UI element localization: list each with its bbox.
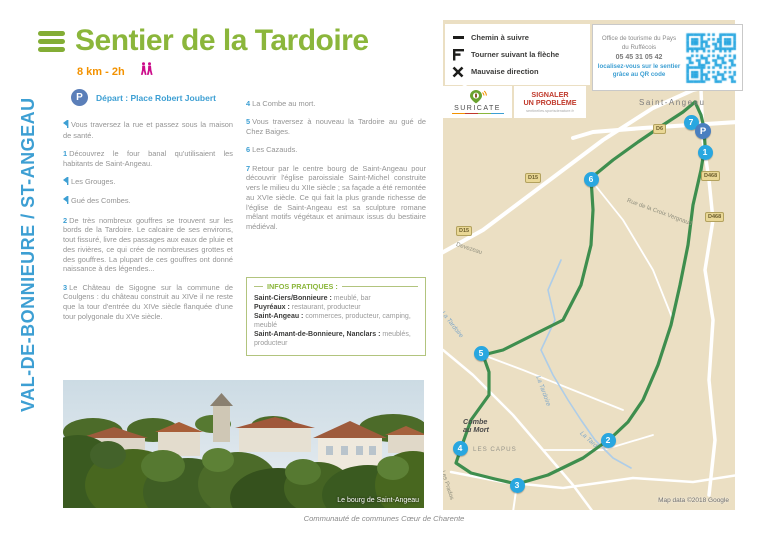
road-badge: D15 (456, 226, 472, 236)
report-url: sentinelles.sportsdenature.fr (526, 109, 574, 113)
map-label: Saint-Angeau (639, 98, 705, 107)
infos-pratiques-title: INFOS PRATIQUES : (254, 282, 418, 291)
footer-credit: Communauté de communes Cœur de Charente (0, 514, 768, 523)
office-phone: 05 45 31 05 42 (597, 54, 681, 61)
legend-row: Chemin à suivre (451, 31, 584, 44)
infos-entry: Saint-Amant-de-Bonnieure, Nanclars : meu… (254, 330, 418, 348)
turn-arrow-icon (63, 196, 69, 207)
legend-label: Tourner suivant la flèche (471, 50, 559, 59)
tourism-office-box: Office de tourisme du Pays du Ruffécois … (592, 24, 743, 91)
office-qr-hint-line1: localisez-vous sur le sentier (597, 63, 681, 71)
map-marker-5: 5 (474, 346, 489, 361)
map-label: LES CAPUS (473, 446, 517, 453)
map-marker-1: 1 (698, 145, 713, 160)
distance-duration-row: 8 km - 2h (77, 62, 154, 81)
infos-pratiques-box: INFOS PRATIQUES : Saint-Ciers/Bonnieure … (246, 277, 426, 356)
infos-entry: Saint-Angeau : commerces, producteur, ca… (254, 312, 418, 330)
photo-caption: Le bourg de Saint-Angeau (337, 497, 419, 504)
trail-step: Les Grouges. (63, 177, 233, 188)
trail-step: 1Découvrez le four banal qu'utilisaient … (63, 149, 233, 169)
depart-row: P Départ : Place Robert Joubert (71, 89, 216, 106)
steps-column-2: 4La Combe au mort.5Vous traversez à nouv… (246, 99, 426, 240)
map-marker-2: 2 (601, 433, 616, 448)
dash-icon (451, 31, 465, 44)
trail-step: 2De très nombreux gouffres se trouvent s… (63, 216, 233, 275)
infos-entry: Saint-Ciers/Bonnieure : meublé, bar (254, 294, 418, 303)
step-number: 7 (246, 164, 250, 173)
step-number: 4 (246, 99, 250, 108)
map-marker-3: 3 (510, 478, 525, 493)
cross-icon (451, 65, 465, 78)
trail-step: 7Retour par le centre bourg de Saint-Ang… (246, 164, 426, 232)
road-badge: D468 (701, 171, 720, 181)
report-problem-box: SIGNALER UN PROBLÈME sentinelles.sportsd… (514, 86, 586, 118)
road-badge: D468 (705, 212, 724, 222)
office-name-line1: Office de tourisme du Pays (597, 35, 681, 43)
turn-arrow-icon (63, 120, 69, 131)
trail-step: 4La Combe au mort. (246, 99, 426, 109)
depart-label: Départ : Place Robert Joubert (96, 93, 216, 103)
map-marker-6: 6 (584, 172, 599, 187)
menu-lines-icon (38, 31, 65, 55)
qr-code (684, 31, 738, 85)
map-attribution: Map data ©2018 Google (658, 497, 729, 504)
infos-pratiques-entries: Saint-Ciers/Bonnieure : meublé, barPuyré… (254, 294, 418, 349)
turn-arrow-icon (63, 177, 69, 188)
trail-step: 5Vous traversez à nouveau la Tardoire au… (246, 117, 426, 137)
legend-row: Tourner suivant la flèche (451, 48, 584, 61)
page-title: Sentier de la Tardoire (75, 24, 369, 58)
commune-vertical-title: VAL-DE-BONNIEURE / ST-ANGEAU (18, 62, 54, 412)
map-label: Combe au Mort (463, 418, 489, 435)
parking-icon: P (71, 89, 88, 106)
walkers-icon (139, 62, 154, 81)
trail-step: 3Le Château de Sigogne sur la commune de… (63, 283, 233, 322)
steps-column-1: Vous traversez la rue et passez sous la … (63, 120, 233, 330)
legend-row: Mauvaise direction (451, 65, 584, 78)
step-number: 6 (246, 145, 250, 154)
suricate-pin-icon (469, 90, 487, 104)
road-badge: D6 (653, 124, 666, 134)
legend-label: Chemin à suivre (471, 33, 529, 42)
turn-flag-icon (451, 48, 465, 61)
road-badge: D15 (525, 173, 541, 183)
map-marker-parking: P (695, 123, 711, 139)
infos-entry: Puyréaux : restaurant, producteur (254, 303, 418, 312)
village-photo: Le bourg de Saint-Angeau (63, 380, 424, 508)
report-line2: UN PROBLÈME (523, 99, 576, 107)
map-marker-4: 4 (453, 441, 468, 456)
step-number: 3 (63, 283, 67, 292)
step-number: 1 (63, 149, 67, 158)
trail-step: 6Les Cazauds. (246, 145, 426, 155)
map-legend: Chemin à suivreTourner suivant la flèche… (445, 24, 590, 85)
office-qr-hint-line2: grâce au QR code (597, 71, 681, 79)
office-name-line2: du Ruffécois (597, 44, 681, 52)
distance-duration: 8 km - 2h (77, 66, 125, 78)
legend-label: Mauvaise direction (471, 67, 539, 76)
step-number: 2 (63, 216, 67, 225)
suricate-brand-line (452, 113, 504, 115)
step-number: 5 (246, 117, 250, 126)
trail-step: Gué des Combes. (63, 196, 233, 207)
suricate-name: SURICATE (454, 105, 501, 112)
trail-step: Vous traversez la rue et passez sous la … (63, 120, 233, 141)
suricate-logo-box: SURICATE (443, 86, 512, 118)
